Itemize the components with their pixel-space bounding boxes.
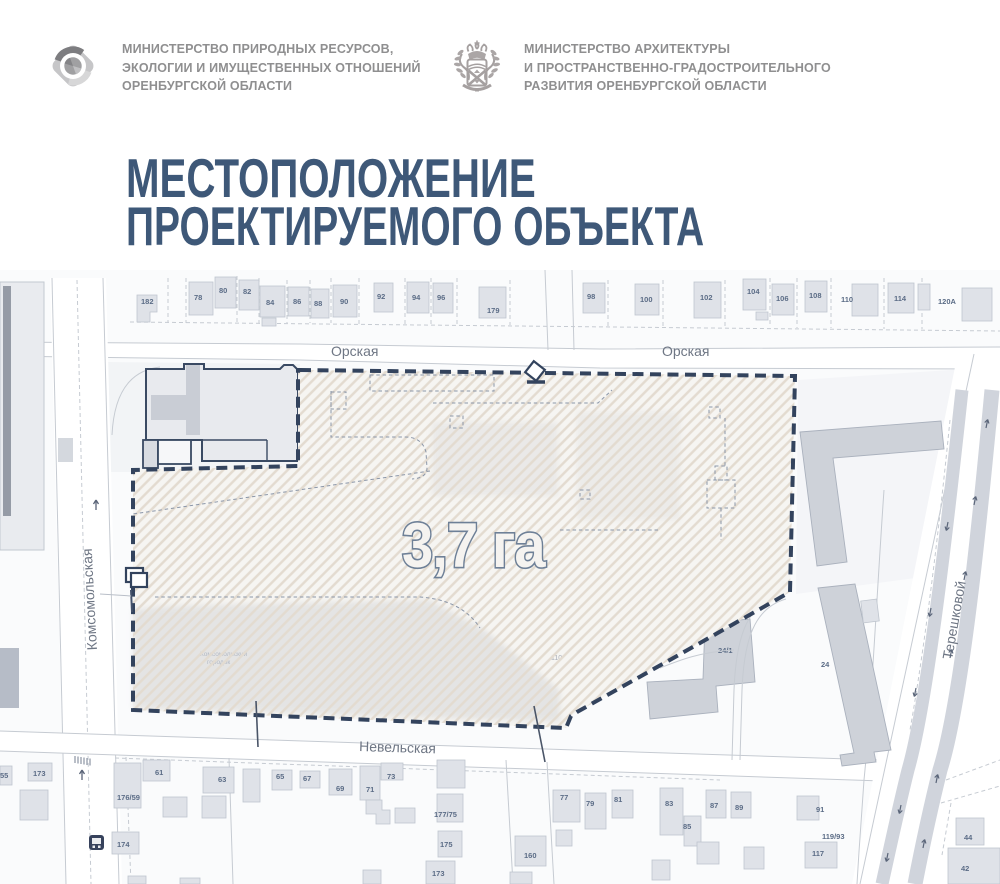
svg-text:44: 44 — [964, 833, 973, 842]
svg-text:Орская: Орская — [662, 343, 709, 359]
svg-text:96: 96 — [437, 293, 445, 302]
svg-text:79: 79 — [586, 799, 594, 808]
svg-text:104: 104 — [747, 287, 760, 296]
svg-text:83: 83 — [665, 799, 673, 808]
svg-text:160: 160 — [524, 851, 537, 860]
svg-text:106: 106 — [776, 294, 789, 303]
svg-text:85: 85 — [683, 822, 691, 831]
svg-text:67: 67 — [303, 774, 311, 783]
svg-text:63: 63 — [218, 775, 226, 784]
svg-text:100: 100 — [640, 295, 653, 304]
svg-text:176/59: 176/59 — [117, 793, 140, 802]
svg-text:173: 173 — [432, 869, 445, 878]
svg-text:102: 102 — [700, 293, 713, 302]
svg-text:120А: 120А — [938, 297, 957, 306]
svg-text:73: 73 — [387, 772, 395, 781]
svg-text:82: 82 — [243, 287, 251, 296]
svg-text:90: 90 — [340, 297, 348, 306]
svg-text:89: 89 — [735, 803, 743, 812]
svg-text:173: 173 — [33, 769, 46, 778]
svg-text:179: 179 — [487, 306, 500, 315]
svg-text:117: 117 — [812, 849, 824, 858]
svg-text:84: 84 — [266, 298, 275, 307]
svg-text:42: 42 — [961, 864, 969, 873]
svg-text:108: 108 — [809, 291, 822, 300]
svg-text:114: 114 — [894, 294, 907, 303]
svg-text:77: 77 — [560, 793, 568, 802]
svg-text:119/93: 119/93 — [822, 832, 845, 841]
svg-text:55: 55 — [0, 771, 8, 780]
svg-text:174: 174 — [117, 840, 130, 849]
svg-text:80: 80 — [219, 286, 227, 295]
svg-text:3,7 га: 3,7 га — [402, 510, 546, 581]
svg-text:92: 92 — [377, 292, 385, 301]
svg-text:78: 78 — [194, 293, 202, 302]
svg-text:182: 182 — [141, 297, 154, 306]
svg-text:91: 91 — [816, 805, 824, 814]
svg-text:86: 86 — [293, 297, 301, 306]
svg-text:110: 110 — [841, 295, 853, 304]
svg-text:87: 87 — [710, 801, 718, 810]
svg-text:94: 94 — [412, 293, 421, 302]
svg-text:69: 69 — [336, 784, 344, 793]
svg-text:177/75: 177/75 — [434, 810, 457, 819]
svg-text:71: 71 — [366, 785, 374, 794]
svg-text:81: 81 — [614, 795, 622, 804]
svg-text:24: 24 — [821, 660, 830, 669]
svg-text:175: 175 — [440, 840, 453, 849]
svg-text:61: 61 — [155, 768, 163, 777]
svg-text:Невельская: Невельская — [359, 738, 436, 756]
svg-text:88: 88 — [314, 299, 322, 308]
svg-text:Орская: Орская — [331, 343, 378, 359]
svg-text:98: 98 — [587, 292, 595, 301]
svg-text:65: 65 — [276, 772, 284, 781]
